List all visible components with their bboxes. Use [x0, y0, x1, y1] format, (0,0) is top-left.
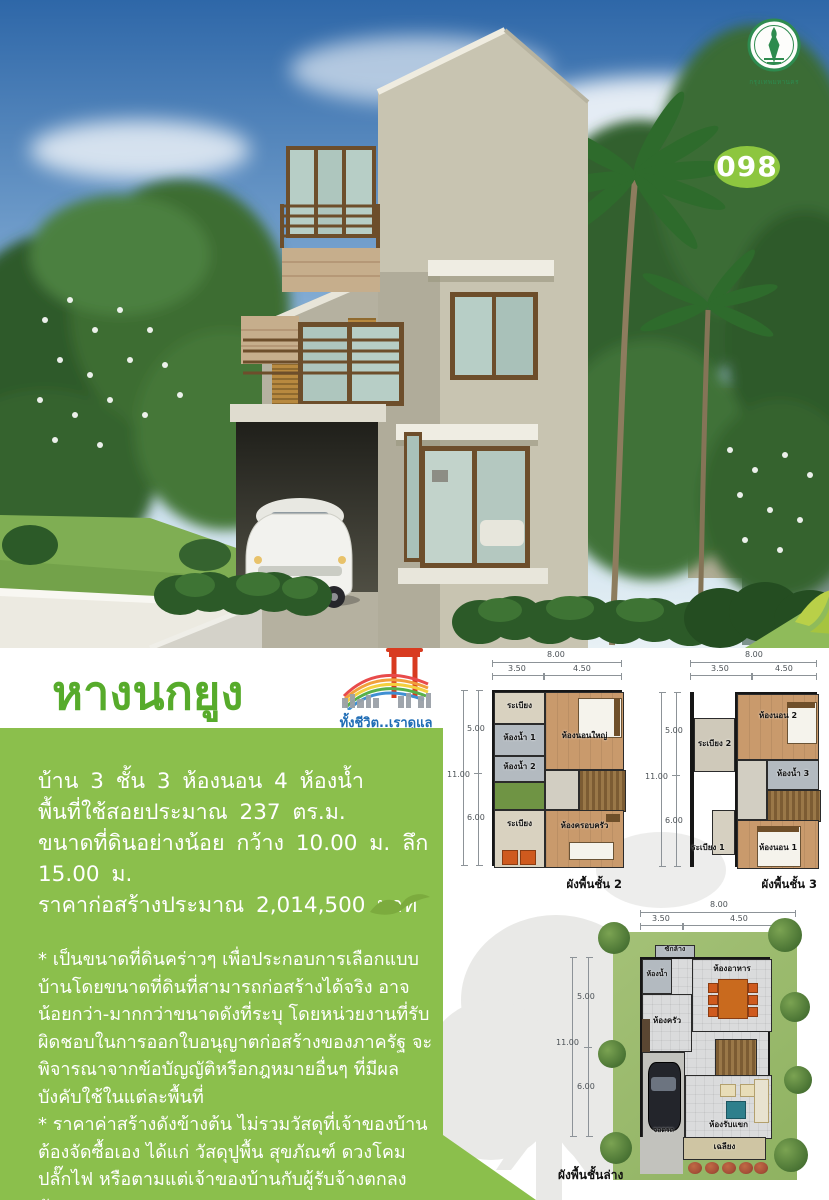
- dim-label: 11.00: [447, 770, 470, 779]
- room-label: ระเบียง 1: [683, 844, 733, 853]
- dim-label: 6.00: [467, 813, 485, 822]
- room-label: ห้องรับแขก: [685, 1121, 772, 1130]
- floor-plan-ground: 8.00 3.50 4.50 11.00 5.00 6.00 ซักล้าง: [558, 900, 829, 1200]
- upper-balcony: [280, 204, 380, 292]
- dim-label: 3.50: [508, 664, 526, 673]
- room-label: ระเบียง: [494, 702, 545, 711]
- dim-label: 3.50: [652, 914, 670, 923]
- room-label: ระเบียง 2: [694, 740, 735, 749]
- room-label: ห้องนอน 2: [737, 712, 819, 721]
- footnote-block: * เป็นขนาดที่ดินคร่าวๆ เพื่อประกอบการเลื…: [38, 946, 436, 1200]
- dim-label: 5.00: [665, 726, 683, 735]
- room-label: ซักล้าง: [653, 946, 697, 954]
- second-floor-window: [450, 292, 538, 380]
- giant-swing-rainbow-icon: [338, 646, 434, 710]
- room-label: ห้องนอน 1: [737, 844, 819, 853]
- spec-line-land: ขนาดที่ดินอย่างน้อย กว้าง 10.00 ม. ลึก 1…: [38, 828, 438, 890]
- spec-line-area: พื้นที่ใช้สอยประมาณ 237 ตร.ม.: [38, 797, 438, 828]
- footnote-price: * ราคาค่าสร้างดังข้างต้น ไม่รวมวัสดุที่เ…: [38, 1111, 436, 1200]
- room-label: ห้องน้ำ 1: [494, 734, 545, 743]
- house-render-photo: [0, 0, 829, 648]
- room-label: ห้องน้ำ 2: [494, 763, 545, 772]
- dim-label: 5.00: [467, 724, 485, 733]
- ground-caption: ผังพื้นชั้นล่าง: [558, 1166, 623, 1185]
- spec-line-rooms: บ้าน 3 ชั้น 3 ห้องนอน 4 ห้องน้ำ: [38, 766, 438, 797]
- room-label: ห้องอาหาร: [692, 965, 772, 974]
- bma-seal-icon: [747, 18, 801, 72]
- plan3-body: ห้องนอน 2 ห้องน้ำ 3 ห้องนอน 1: [735, 692, 817, 867]
- dim-label: 4.50: [775, 664, 793, 673]
- dim-label: 4.50: [730, 914, 748, 923]
- bma-seal: กรุงเทพมหานคร: [742, 18, 806, 87]
- model-number-badge: 098: [714, 146, 780, 188]
- footnote-land: * เป็นขนาดที่ดินคร่าวๆ เพื่อประกอบการเลื…: [38, 946, 436, 1111]
- dim-label: 11.00: [556, 1038, 579, 1047]
- room-label: ห้องน้ำ: [642, 971, 672, 979]
- plan2-caption: ผังพื้นชั้น 2: [515, 876, 622, 894]
- brand-logo: ทั้งชีวิต..เราดูแล: [336, 646, 436, 733]
- dim-label: 6.00: [665, 816, 683, 825]
- plan3-caption: ผังพื้นชั้น 3: [715, 876, 817, 894]
- plan2-body: ระเบียง ห้องน้ำ 1 ห้องน้ำ 2 ห้องนอนใหญ่ …: [492, 690, 622, 866]
- room-label: ห้องนอนใหญ่: [545, 732, 624, 741]
- bird-icon: [368, 888, 432, 918]
- room-label: ห้องน้ำ 3: [767, 770, 819, 779]
- third-floor-windows: [286, 146, 376, 238]
- ground-body: ห้องน้ำ ห้องอาหาร ห้องครัว จอดรถ ห้องรับ…: [640, 957, 770, 1137]
- poster-page: กรุงเทพมหานคร 098 หางนกยูง ทั้งช: [0, 0, 829, 1200]
- floor-plan-2: 8.00 3.50 4.50 11.00 5.00 6.00 ระเบีย: [455, 648, 655, 898]
- page-title: หางนกยูง: [52, 655, 243, 730]
- dim-label: 8.00: [745, 650, 763, 659]
- ground-floor-window: [420, 446, 530, 568]
- room-label: ระเบียง: [494, 820, 545, 829]
- seal-caption: กรุงเทพมหานคร: [742, 77, 806, 87]
- room-label: เฉลียง: [683, 1143, 766, 1152]
- dim-label: 4.50: [573, 664, 591, 673]
- dim-label: 11.00: [645, 772, 668, 781]
- room-label: ห้องครัว: [642, 1017, 692, 1026]
- dim-label: 6.00: [577, 1082, 595, 1091]
- room-label: จอดรถ: [642, 1127, 685, 1135]
- dim-label: 3.50: [711, 664, 729, 673]
- floor-plan-3: 8.00 3.50 4.50 11.00 5.00 6.00 ห้องนอน 2…: [655, 648, 829, 898]
- driveway: [640, 1137, 683, 1174]
- dim-label: 5.00: [577, 992, 595, 1001]
- dim-label: 8.00: [710, 900, 728, 909]
- dim-label: 8.00: [547, 650, 565, 659]
- room-label: ห้องครอบครัว: [545, 822, 624, 831]
